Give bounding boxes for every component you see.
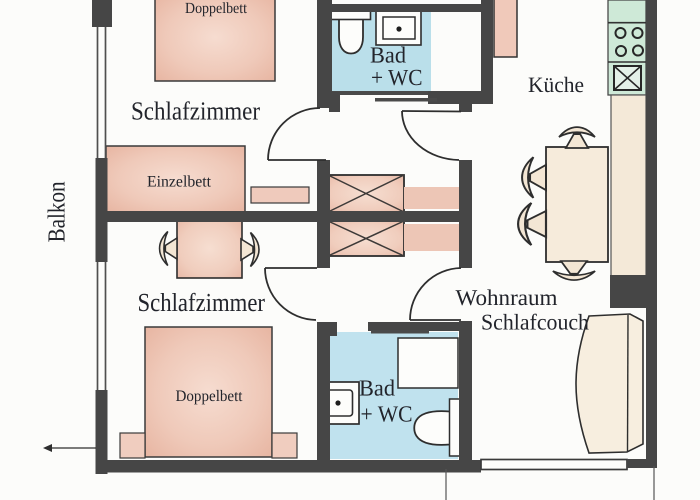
svg-text:Bad: Bad [359, 376, 395, 401]
svg-text:Küche: Küche [528, 72, 584, 97]
svg-text:Einzelbett: Einzelbett [147, 174, 212, 191]
svg-text:+ WC: + WC [371, 65, 423, 90]
svg-text:Bad: Bad [370, 43, 406, 68]
svg-text:Wohnraum: Wohnraum [456, 285, 559, 310]
svg-text:Balkon: Balkon [44, 181, 71, 242]
svg-text:+ WC: + WC [361, 402, 413, 427]
svg-text:Doppelbett: Doppelbett [185, 0, 248, 17]
svg-text:Schlafcouch: Schlafcouch [481, 310, 589, 335]
svg-text:Schlafzimmer: Schlafzimmer [138, 288, 266, 317]
svg-text:Doppelbett: Doppelbett [176, 388, 244, 405]
svg-text:Schlafzimmer: Schlafzimmer [131, 97, 260, 126]
